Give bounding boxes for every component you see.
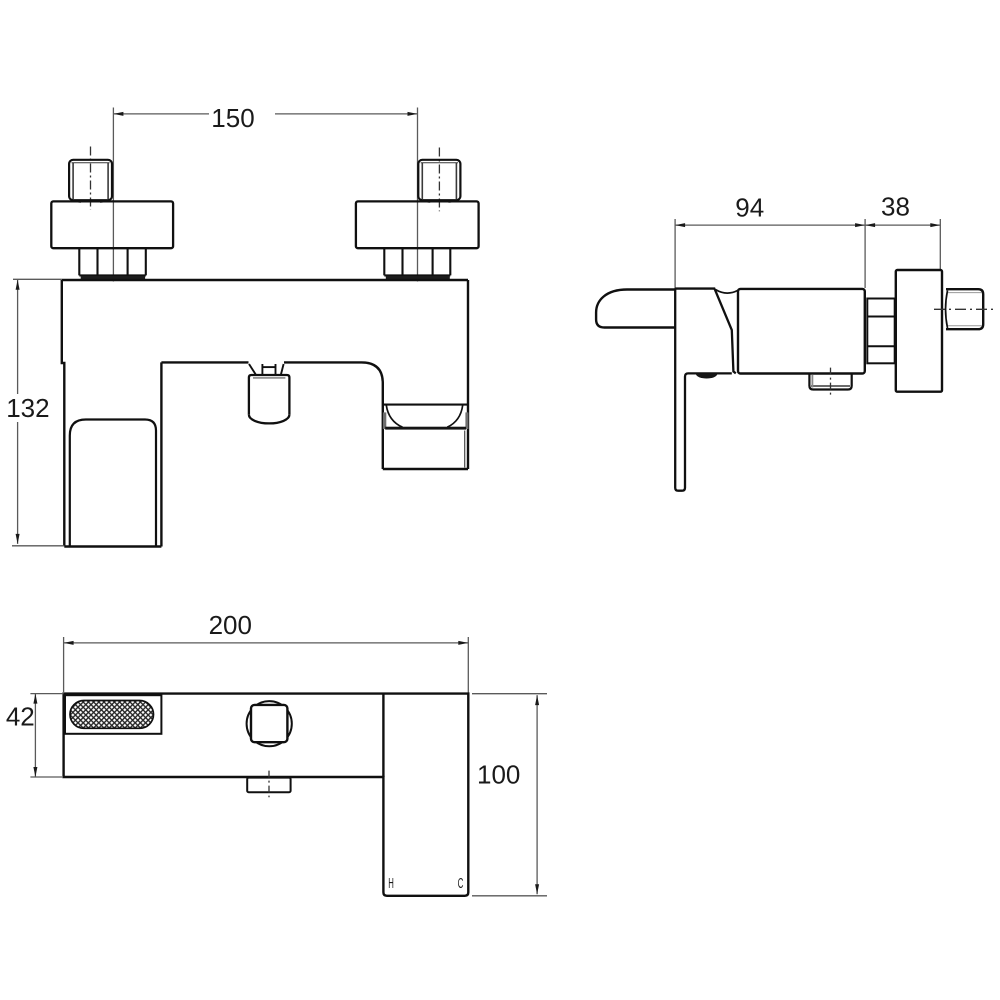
svg-text:94: 94 bbox=[735, 192, 764, 222]
svg-text:100: 100 bbox=[477, 759, 520, 789]
svg-text:38: 38 bbox=[881, 192, 910, 222]
svg-text:150: 150 bbox=[211, 103, 254, 133]
svg-text:200: 200 bbox=[209, 610, 252, 640]
svg-text:C: C bbox=[458, 876, 464, 892]
svg-text:42: 42 bbox=[6, 702, 35, 732]
svg-text:H: H bbox=[388, 876, 394, 892]
svg-text:132: 132 bbox=[6, 393, 49, 423]
